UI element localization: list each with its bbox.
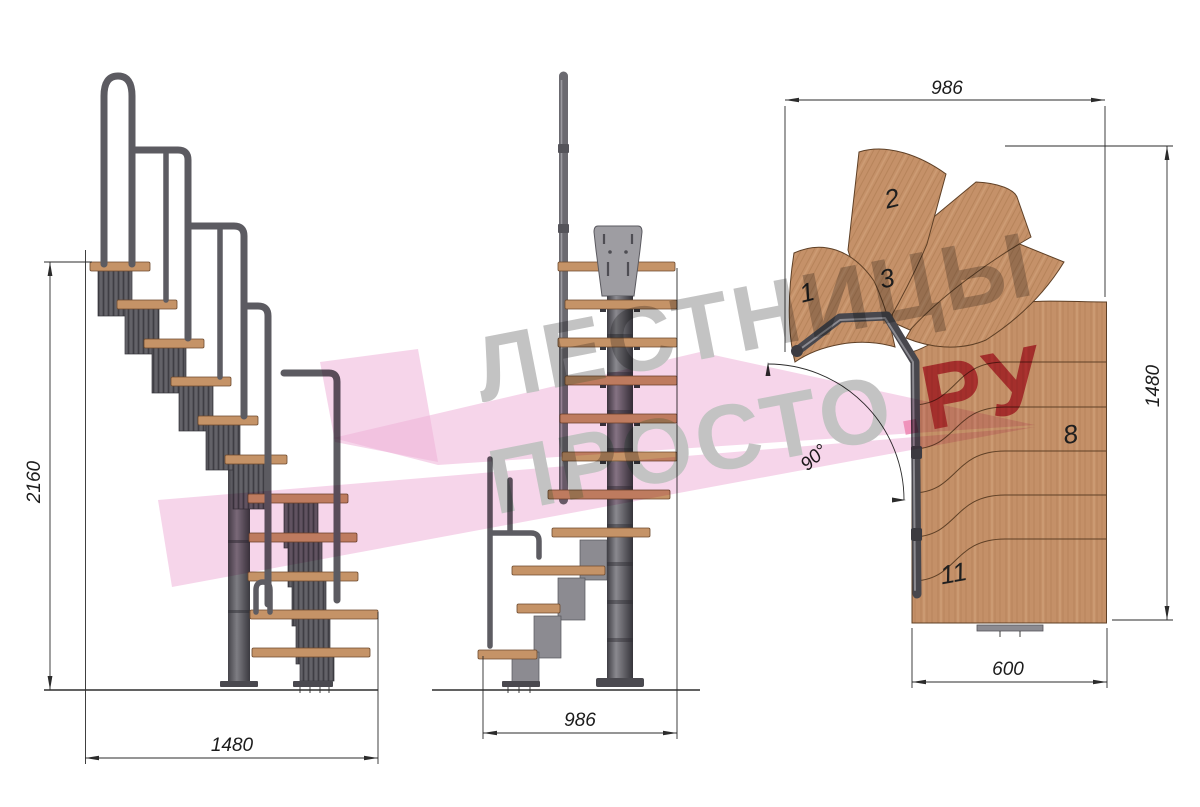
height-dimension: 2160 <box>24 262 92 690</box>
step-module <box>300 656 334 681</box>
dimension-arrow <box>1165 146 1170 160</box>
plate-hole <box>608 250 612 254</box>
pole-coupling <box>558 224 569 233</box>
tread <box>552 528 650 537</box>
drawing-page: 2160 1480 <box>0 0 1200 807</box>
side-elevation-view: 2160 1480 <box>24 76 378 764</box>
staircase-drawing-canvas: 2160 1480 <box>0 0 1200 807</box>
tread <box>90 262 150 271</box>
front-width-label: 986 <box>564 710 596 731</box>
tread <box>252 648 370 657</box>
dimension-arrow <box>1091 98 1105 103</box>
plate-hole <box>624 250 628 254</box>
pole-coupling <box>558 144 569 153</box>
plan-exit-label: 600 <box>992 659 1024 680</box>
dimension-arrow <box>1165 606 1170 620</box>
column-coupling <box>228 610 250 613</box>
dimension-arrow <box>912 680 926 685</box>
side-run-label: 1480 <box>211 735 254 756</box>
plan-exit-dimension: 600 <box>912 628 1107 688</box>
handrail-coupling <box>911 528 922 541</box>
step-module <box>558 578 585 620</box>
flight-base-plate <box>977 625 1043 631</box>
plan-width-label: 986 <box>931 78 963 99</box>
module-base-plate <box>293 681 333 687</box>
anchor-bolts <box>1000 631 1020 637</box>
dimension-arrow <box>1093 680 1107 685</box>
tread <box>198 416 258 425</box>
dimension-arrow <box>785 98 799 103</box>
tread <box>478 650 537 659</box>
plan-depth-label: 1480 <box>1143 364 1164 407</box>
column-base-plate <box>220 681 258 687</box>
tread <box>512 566 605 575</box>
dimension-arrow <box>85 756 99 761</box>
dimension-arrow <box>364 756 378 761</box>
tread <box>144 339 204 348</box>
tread <box>517 604 560 613</box>
wall-mounting-plate <box>594 226 642 296</box>
module-base-plate <box>502 681 540 687</box>
dimension-arrow <box>48 676 53 690</box>
handrail-rail-segment <box>492 533 539 557</box>
column-base-flange <box>596 678 644 687</box>
dimension-arrow <box>483 731 497 736</box>
dimension-arrow <box>663 731 677 736</box>
tread <box>225 455 287 464</box>
step-number-11: 11 <box>938 556 970 590</box>
handrail-lower-loop <box>256 582 270 612</box>
dimension-arrow <box>48 262 53 276</box>
side-height-label: 2160 <box>24 460 45 504</box>
handrail-loop-post <box>104 76 132 264</box>
